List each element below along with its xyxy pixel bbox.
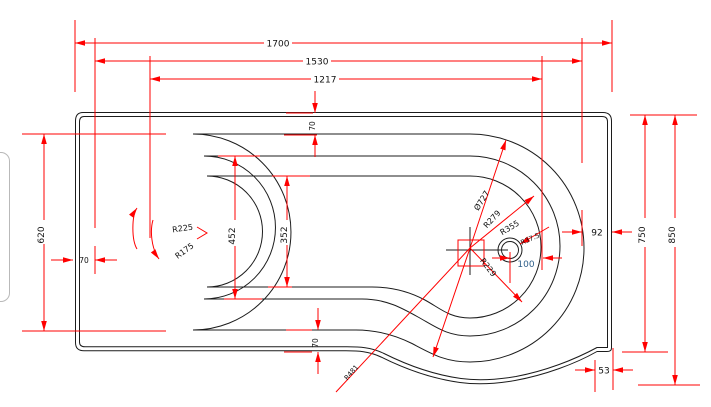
radius-label-bowl-outer: R355 (498, 219, 520, 237)
radius-label-transition: R481 (343, 363, 361, 382)
dim-label-right-gap: 92 (591, 229, 602, 239)
dim-label-top-rim-offset: 70 (308, 121, 317, 131)
dim-label-overall-length: 1700 (267, 40, 290, 50)
radius-label-bowl-inner: R229 (478, 256, 498, 278)
bath-opening-curve (193, 134, 584, 362)
r225-arc-highlight (133, 208, 137, 249)
leader-transition-arrow (433, 248, 470, 357)
dimension-lines-group (22, 20, 700, 392)
r175-arc-highlight (151, 220, 159, 259)
radius-label-left-outer: R225 (172, 223, 194, 235)
dim-label-inner-width-upper: 452 (228, 227, 238, 244)
radius-label-left-inner: R175 (173, 241, 195, 261)
bath-rim-outer-line (76, 113, 612, 384)
dim-label-floor-width: 352 (280, 226, 290, 243)
dim-label-left-rim-offset: 70 (79, 256, 89, 265)
dim-label-bottom-rim-offset: 70 (311, 338, 320, 348)
dim-label-inner-length: 1530 (306, 58, 329, 68)
dim-label-corner-offset: 53 (598, 367, 609, 377)
cad-drawing-canvas: 1700 1530 1217 70 70 70 620 452 352 750 … (0, 0, 711, 407)
bath-outline-group (76, 113, 612, 384)
dim-label-floor-length: 1217 (314, 76, 337, 86)
leader-bowl-inner (470, 248, 522, 302)
radius-label-bowl-mid: R279 (482, 209, 503, 230)
dim-label-width-main: 750 (638, 226, 648, 243)
radius-label-bowl-diameter: Ø727 (471, 189, 491, 213)
bath-floor-curve (207, 176, 541, 318)
dim-label-drain-offset: 100 (517, 260, 534, 270)
dim-label-inner-height: 620 (37, 226, 47, 243)
r225-pointer-chevron (197, 227, 207, 239)
radius-label-drain: R37.5 (519, 231, 540, 246)
bath-slope-curve (204, 156, 560, 336)
dim-label-width-overall: 850 (668, 226, 678, 243)
bath-plan-drawing: 1700 1530 1217 70 70 70 620 452 352 750 … (0, 0, 711, 407)
